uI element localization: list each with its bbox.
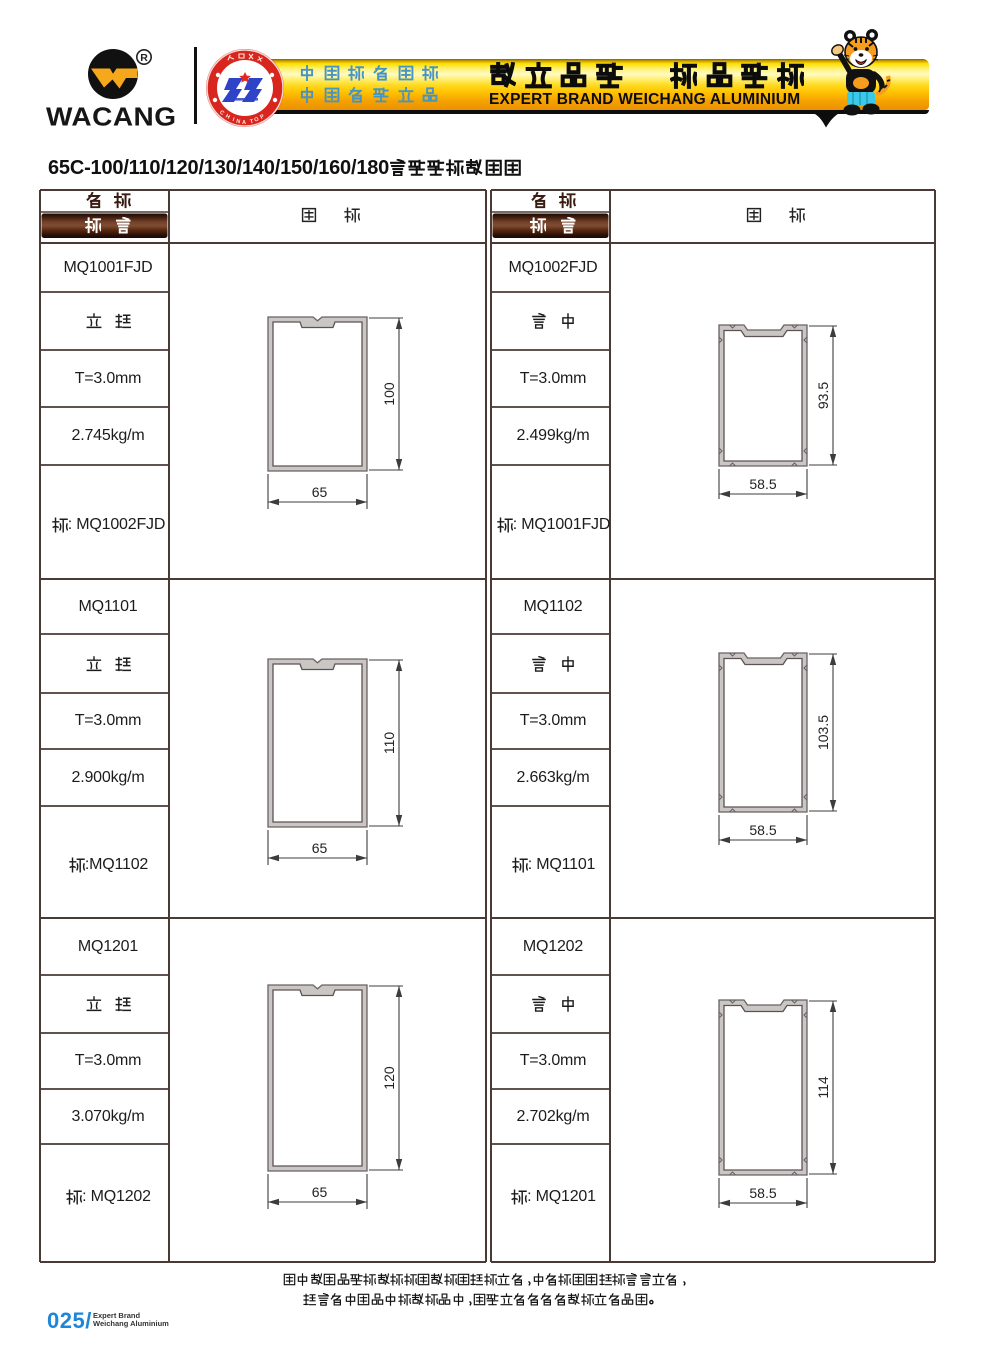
svg-text:65: 65 xyxy=(312,1184,328,1200)
svg-text:120: 120 xyxy=(381,1066,397,1090)
svg-text:65: 65 xyxy=(312,840,328,856)
svg-text:58.5: 58.5 xyxy=(749,476,776,492)
svg-text:110: 110 xyxy=(381,732,397,755)
svg-text:65: 65 xyxy=(312,484,328,500)
svg-text:58.5: 58.5 xyxy=(749,822,776,838)
svg-text:58.5: 58.5 xyxy=(749,1185,776,1201)
svg-text:93.5: 93.5 xyxy=(815,382,831,409)
svg-text:100: 100 xyxy=(381,382,397,406)
svg-text:103.5: 103.5 xyxy=(815,715,831,750)
svg-text:114: 114 xyxy=(815,1076,831,1099)
